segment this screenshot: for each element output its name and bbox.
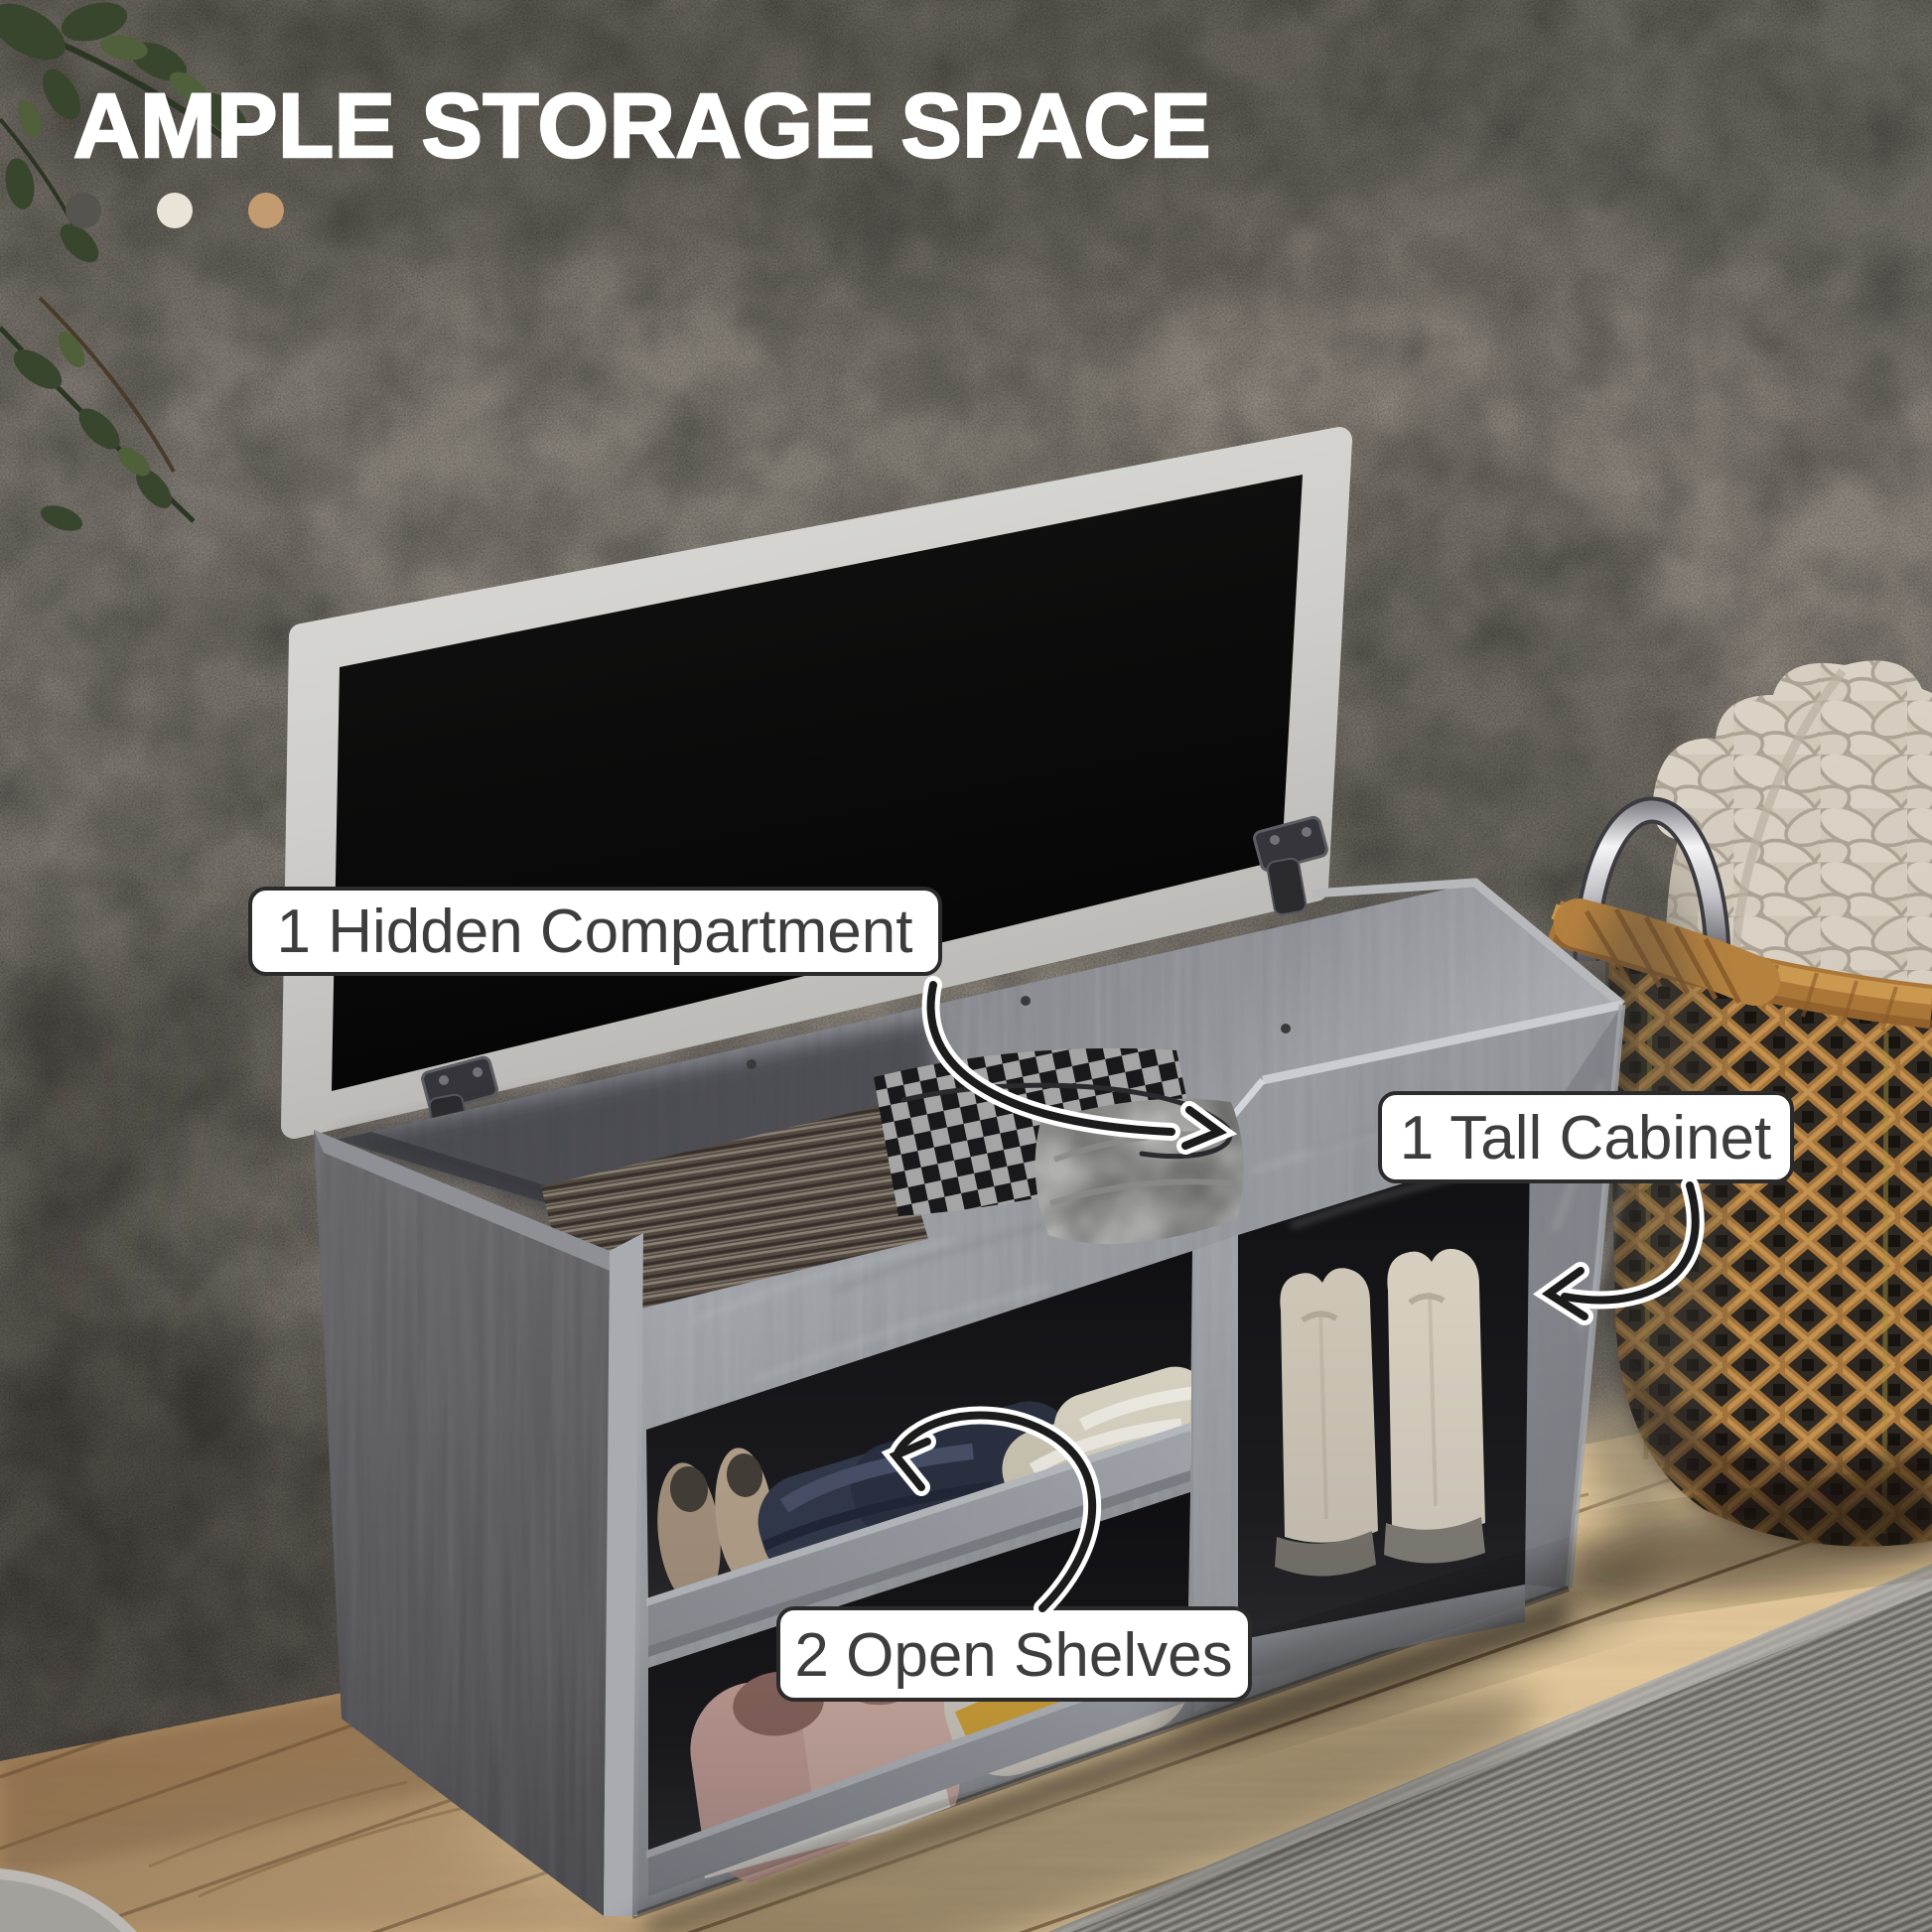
svg-text:1 Tall Cabinet: 1 Tall Cabinet [1400,1104,1772,1173]
svg-text:AMPLE STORAGE SPACE: AMPLE STORAGE SPACE [73,75,1211,177]
svg-text:1 Hidden Compartment: 1 Hidden Compartment [277,897,913,966]
svg-text:2 Open Shelves: 2 Open Shelves [794,1621,1232,1690]
